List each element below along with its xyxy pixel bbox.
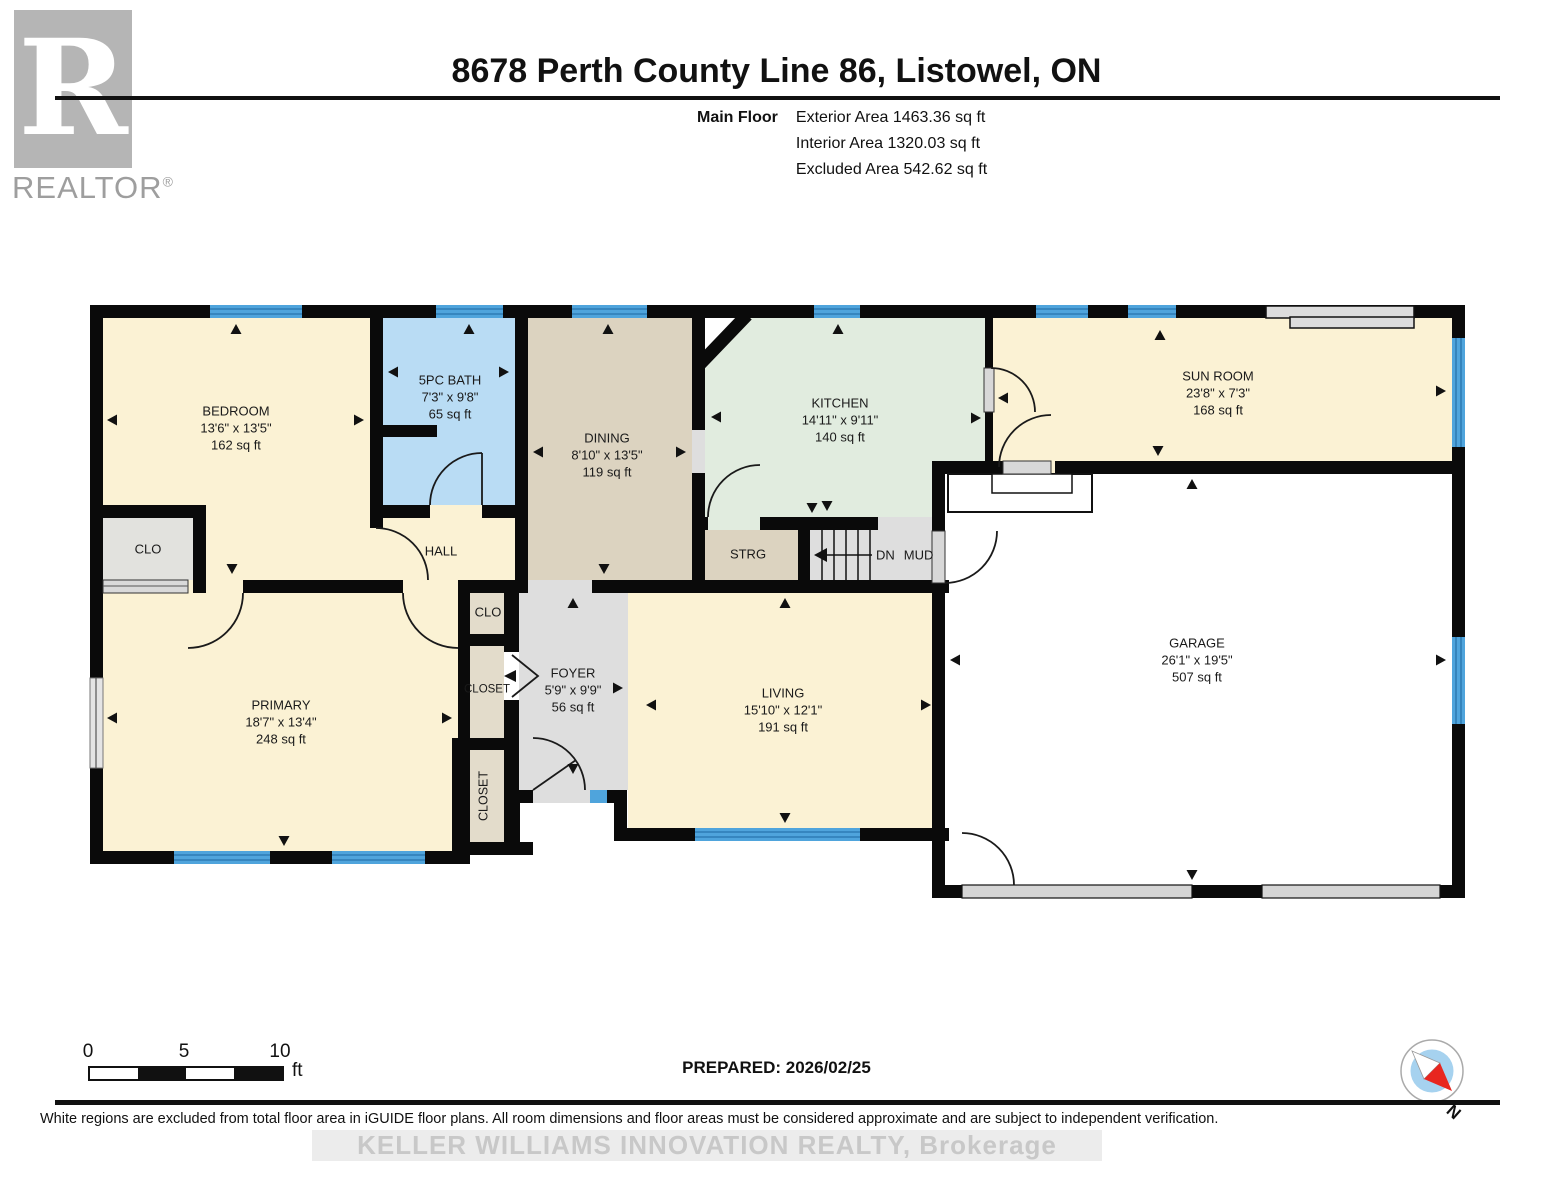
brokerage-watermark: KELLER WILLIAMS INNOVATION REALTY, Broke… <box>312 1130 1102 1161</box>
disclaimer-text: White regions are excluded from total fl… <box>40 1111 1218 1127</box>
garage-landing-inner <box>992 474 1072 493</box>
room-label-hall: HALL <box>425 543 458 560</box>
kitchen-sunroom-door-leaf <box>984 368 994 412</box>
prepared-date: PREPARED: 2026/02/25 <box>0 1058 1553 1078</box>
floor-plan-drawing <box>0 0 1553 1200</box>
room-label-clo-bedroom: CLO <box>135 541 162 558</box>
room-label-bedroom: BEDROOM13'6" x 13'5"162 sq ft <box>200 403 271 454</box>
room-label-primary: PRIMARY18'7" x 13'4"248 sq ft <box>245 697 316 748</box>
closet-arrow <box>504 670 516 682</box>
room-label-closet-bottom: CLOSET <box>476 771 493 821</box>
room-label-dining: DINING8'10" x 13'5"119 sq ft <box>571 430 642 481</box>
room-label-kitchen: KITCHEN14'11" x 9'11"140 sq ft <box>802 395 879 446</box>
room-label-foyer: FOYER5'9" x 9'9"56 sq ft <box>545 665 602 716</box>
sunroom-door-leaf <box>1003 461 1051 474</box>
bath-door-gap <box>430 505 482 518</box>
primary-door-gap-right <box>403 580 458 593</box>
front-door-gap <box>533 790 590 803</box>
room-label-living: LIVING15'10" x 12'1"191 sq ft <box>744 685 823 736</box>
footer-divider <box>55 1100 1500 1105</box>
room-label-clo-foyer: CLO <box>475 604 502 621</box>
compass-icon: N <box>1396 1034 1474 1120</box>
room-label-garage: GARAGE26'1" x 19'5"507 sq ft <box>1161 635 1232 686</box>
mud-opening <box>878 517 937 529</box>
room-label-storage: STRG <box>730 546 766 563</box>
mud-door-leaf <box>932 531 945 583</box>
garage-door-right <box>1262 885 1440 898</box>
room-label-bath: 5PC BATH7'3" x 9'8"65 sq ft <box>419 372 482 423</box>
exterior-steps-lower <box>1290 317 1414 328</box>
foyer-dining-opening <box>519 580 592 593</box>
storage-door-gap <box>708 517 760 530</box>
dining-kitchen-pass <box>692 430 705 473</box>
exterior-steps-upper <box>1266 306 1414 318</box>
room-label-sunroom: SUN ROOM23'8" x 7'3"168 sq ft <box>1182 368 1254 419</box>
room-label-dn-mud: DNMUD <box>876 548 933 563</box>
garage-door-left <box>962 885 1192 898</box>
room-label-closet-mid: CLOSET <box>464 682 510 699</box>
floorplan-page: R REALTOR® 8678 Perth County Line 86, Li… <box>0 0 1553 1200</box>
bedroom-door-gap <box>370 528 383 580</box>
